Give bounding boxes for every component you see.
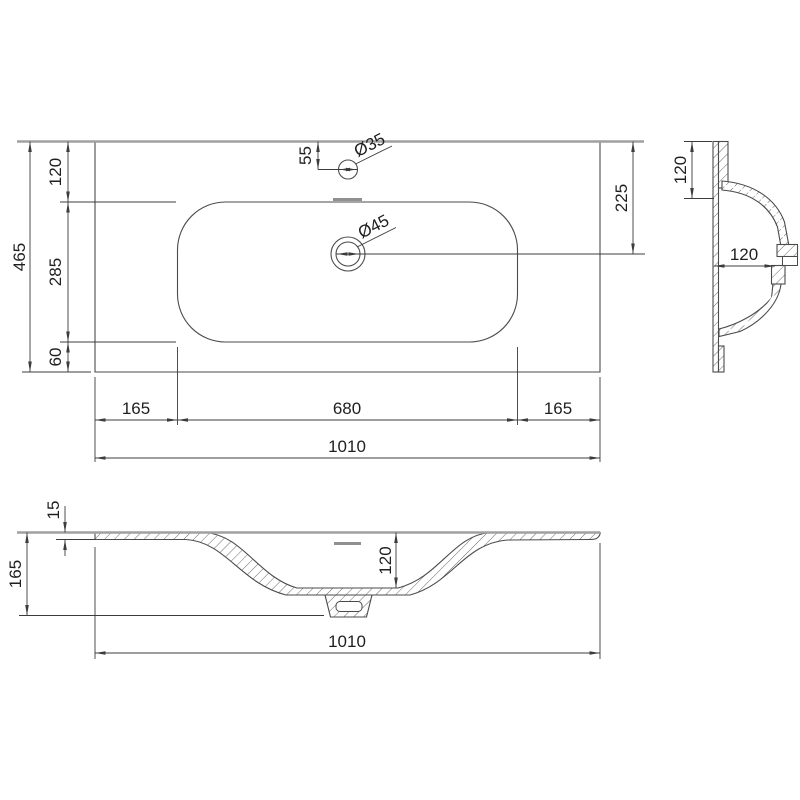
rim-thickness-label: 15 (44, 501, 63, 520)
basin-width-label: 680 (333, 399, 361, 418)
side-basin-depth-label: 120 (730, 245, 758, 264)
washbasin-drawing: Ø35 55 Ø45 465 120 285 60 (0, 0, 800, 800)
basin-to-back-label: 60 (46, 348, 65, 367)
front-height-label: 165 (6, 560, 25, 588)
right-margin-label: 165 (544, 399, 572, 418)
front-to-basin-label: 120 (46, 158, 65, 186)
total-depth-label: 465 (10, 243, 29, 271)
side-top-to-basin-label: 120 (671, 156, 690, 184)
bowl-depth-label: 120 (376, 546, 395, 574)
basin-depth-label: 285 (46, 258, 65, 286)
front-drain-boss (325, 595, 372, 617)
technical-drawing-page: Ø35 55 Ø45 465 120 285 60 (0, 0, 800, 800)
total-width-label: 1010 (328, 437, 366, 456)
side-wall-section (713, 142, 719, 373)
top-to-drain-label: 225 (612, 184, 631, 212)
front-width-label: 1010 (328, 632, 366, 651)
side-bottom-flange (719, 346, 725, 372)
page-background (0, 0, 800, 800)
left-margin-label: 165 (122, 399, 150, 418)
faucet-offset-label: 55 (296, 146, 315, 165)
